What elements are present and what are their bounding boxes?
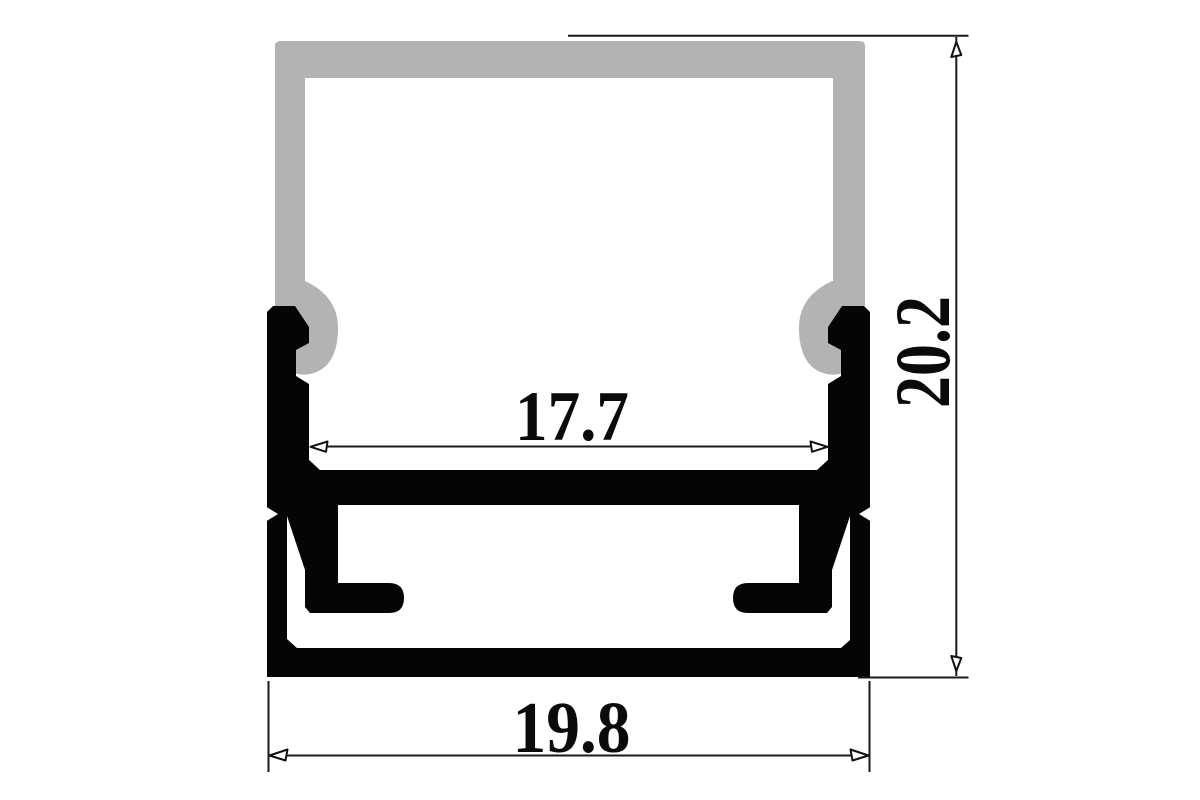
- svg-text:19.8: 19.8: [513, 687, 631, 768]
- svg-text:20.2: 20.2: [879, 296, 966, 408]
- svg-text:17.7: 17.7: [515, 378, 629, 456]
